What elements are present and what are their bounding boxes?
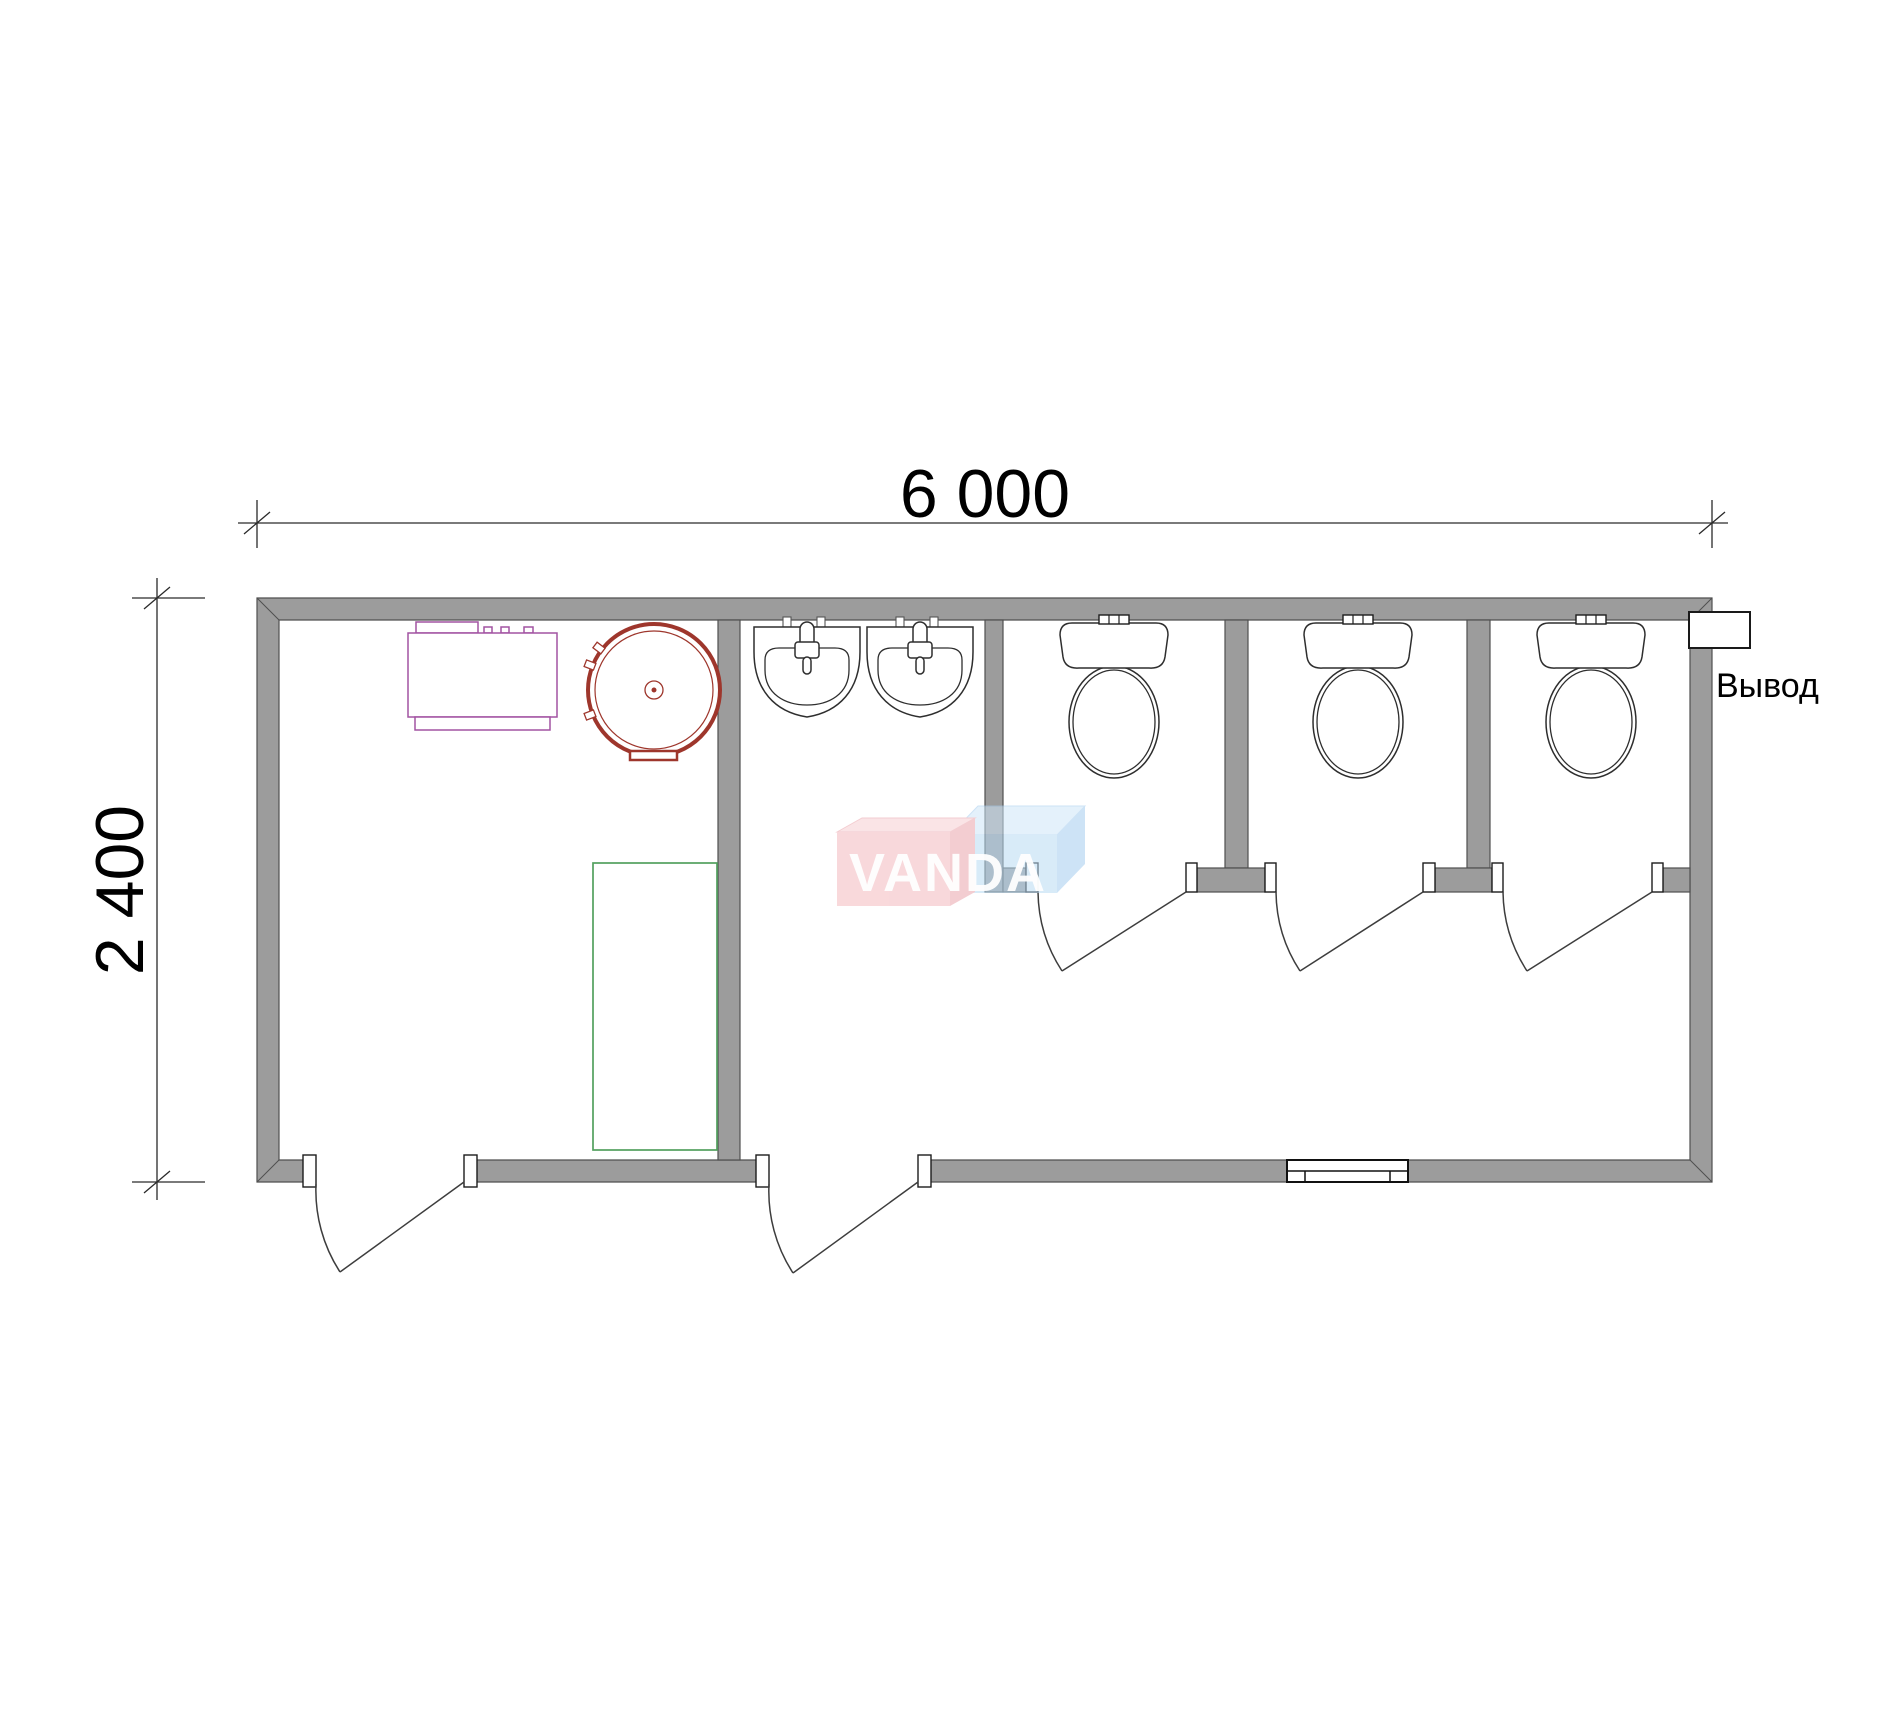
stall-door-3 [1503, 892, 1652, 971]
partition-foot [1435, 868, 1492, 892]
door-jamb [1186, 863, 1197, 892]
toilet-2 [1304, 615, 1412, 778]
washbasin-1 [754, 617, 860, 717]
entrance-door-storage [316, 1182, 464, 1272]
entrance-door-washroom [769, 1182, 918, 1273]
toilet-1 [1060, 615, 1168, 778]
door-jamb [303, 1155, 316, 1187]
toilet-3 [1537, 615, 1645, 778]
stall-door-1 [1038, 892, 1186, 971]
dimension-width: 6 000 [238, 456, 1728, 548]
partition-wall-stall1-stall2 [1225, 620, 1248, 868]
door-jamb [1265, 863, 1276, 892]
partition-wall-stall2-stall3 [1467, 620, 1490, 868]
door-jamb [918, 1155, 931, 1187]
stall-door-2 [1276, 892, 1423, 971]
door-jamb [1492, 863, 1503, 892]
floor-plan: VANDA 6 000 2 400 Вывод [0, 0, 1902, 1717]
dimension-height: 2 400 [82, 578, 205, 1200]
window [1287, 1160, 1408, 1182]
partition-wall-storage-washroom [718, 620, 740, 1160]
door-jamb [1423, 863, 1435, 892]
water-heater [584, 624, 720, 760]
outlet-label: Вывод [1716, 667, 1819, 705]
partition-foot [1663, 868, 1690, 892]
door-opening [315, 1157, 465, 1185]
partition-foot [1197, 868, 1265, 892]
floor-plan-page: VANDA 6 000 2 400 Вывод [0, 0, 1902, 1717]
dimension-height-text: 2 400 [82, 805, 158, 975]
door-jamb [1652, 863, 1663, 892]
boiler-unit [408, 622, 557, 730]
utility-outlet [1689, 612, 1750, 648]
door-jamb [756, 1155, 769, 1187]
door-jambs [303, 863, 1663, 1187]
shower-tray [593, 863, 717, 1150]
dimension-width-text: 6 000 [900, 456, 1070, 532]
door-jamb [464, 1155, 477, 1187]
washbasin-2 [867, 617, 973, 717]
door-opening [768, 1157, 919, 1185]
watermark-text: VANDA [849, 843, 1047, 903]
